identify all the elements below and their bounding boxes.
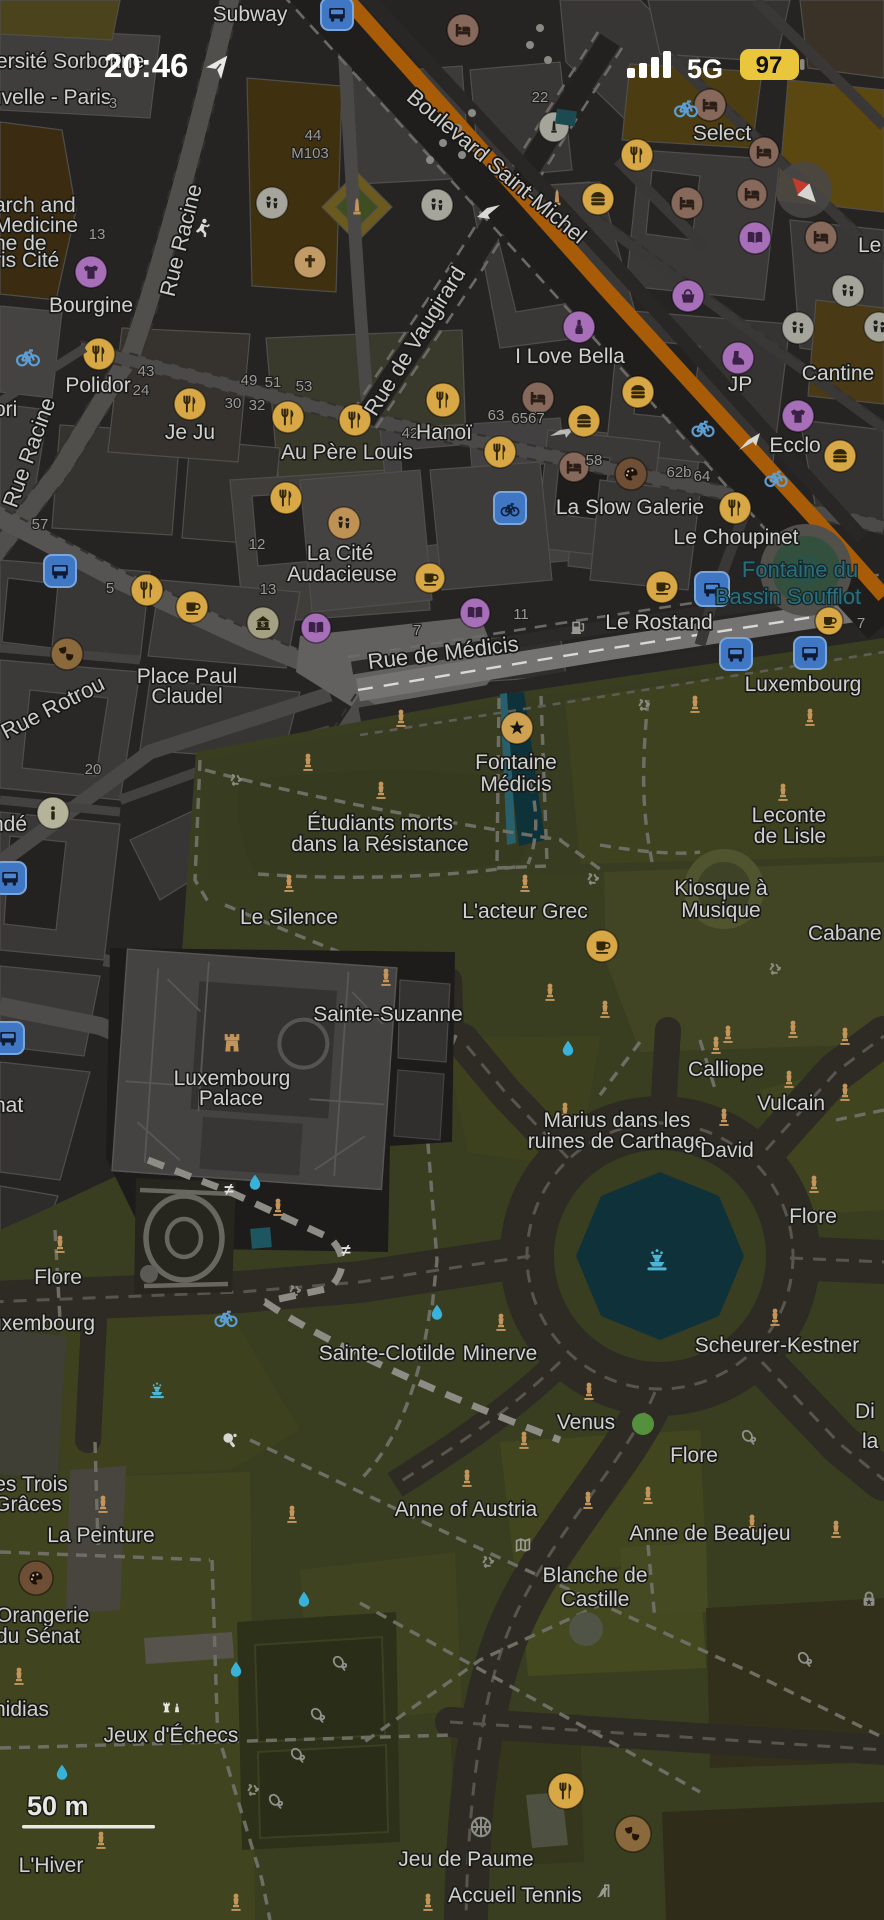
svg-text:Le Silence: Le Silence bbox=[240, 906, 338, 929]
svg-text:Le Choupinet: Le Choupinet bbox=[674, 526, 799, 549]
svg-text:Polidor: Polidor bbox=[65, 374, 130, 397]
svg-text:Subway: Subway bbox=[213, 3, 288, 26]
svg-text:Musique: Musique bbox=[681, 899, 760, 922]
svg-text:du Sénat: du Sénat bbox=[0, 1625, 80, 1648]
svg-text:Jeux d'Échecs: Jeux d'Échecs bbox=[104, 1724, 239, 1747]
svg-text:Au Père Louis: Au Père Louis bbox=[281, 441, 413, 464]
svg-text:Accueil Tennis: Accueil Tennis bbox=[448, 1884, 582, 1907]
svg-text:dans la Résistance: dans la Résistance bbox=[291, 833, 468, 856]
svg-text:63: 63 bbox=[488, 407, 505, 424]
svg-text:Select: Select bbox=[693, 122, 752, 145]
svg-text:7: 7 bbox=[857, 615, 865, 632]
svg-text:13: 13 bbox=[260, 581, 277, 598]
svg-text:5: 5 bbox=[106, 580, 114, 597]
svg-text:de Lisle: de Lisle bbox=[754, 825, 826, 848]
svg-text:Le Rostand: Le Rostand bbox=[605, 611, 712, 634]
svg-text:22: 22 bbox=[532, 89, 549, 106]
svg-text:Luxembourg: Luxembourg bbox=[745, 673, 862, 696]
svg-text:nat: nat bbox=[0, 1094, 23, 1117]
svg-text:Bassin Soufflot: Bassin Soufflot bbox=[715, 584, 861, 609]
svg-text:Palace: Palace bbox=[199, 1087, 263, 1110]
svg-text:13: 13 bbox=[89, 226, 106, 243]
svg-text:Ecclo: Ecclo bbox=[769, 434, 820, 457]
svg-text:11: 11 bbox=[513, 606, 529, 623]
svg-text:Claudel: Claudel bbox=[151, 685, 222, 708]
svg-text:L'acteur Grec: L'acteur Grec bbox=[462, 900, 587, 923]
svg-text:7: 7 bbox=[413, 622, 421, 639]
svg-text:Cantine: Cantine bbox=[802, 362, 874, 385]
svg-text:Marius dans les: Marius dans les bbox=[543, 1109, 690, 1132]
svg-text:Le: Le bbox=[858, 234, 881, 257]
svg-text:ndé: ndé bbox=[0, 813, 27, 836]
svg-text:David: David bbox=[700, 1139, 754, 1162]
svg-text:hidias: hidias bbox=[0, 1698, 49, 1721]
svg-text:Grâces: Grâces bbox=[0, 1493, 62, 1516]
svg-text:Calliope: Calliope bbox=[688, 1058, 764, 1081]
svg-text:Leconte: Leconte bbox=[752, 804, 827, 827]
svg-text:I Love Bella: I Love Bella bbox=[515, 345, 625, 368]
svg-text:L'Hiver: L'Hiver bbox=[19, 1854, 84, 1877]
svg-text:Sainte-Suzanne: Sainte-Suzanne bbox=[313, 1003, 462, 1026]
svg-text:24: 24 bbox=[133, 382, 150, 399]
svg-text:57: 57 bbox=[32, 516, 49, 533]
svg-text:ori: ori bbox=[0, 398, 17, 421]
svg-text:La Slow Galerie: La Slow Galerie bbox=[556, 496, 704, 519]
svg-text:≠: ≠ bbox=[341, 1241, 351, 1260]
svg-text:Médicis: Médicis bbox=[480, 773, 551, 796]
svg-text:30: 30 bbox=[225, 395, 242, 412]
svg-text:Flore: Flore bbox=[789, 1205, 837, 1228]
svg-text:Étudiants morts: Étudiants morts bbox=[307, 812, 453, 835]
svg-text:ruines de Carthage: ruines de Carthage bbox=[528, 1130, 707, 1153]
svg-text:Anne de Beaujeu: Anne de Beaujeu bbox=[629, 1522, 790, 1545]
svg-text:64: 64 bbox=[694, 468, 711, 485]
svg-text:uvelle - Paris: uvelle - Paris bbox=[0, 86, 111, 109]
svg-text:Audacieuse: Audacieuse bbox=[287, 563, 397, 586]
svg-text:43: 43 bbox=[138, 363, 155, 380]
svg-text:La Cité: La Cité bbox=[307, 542, 374, 565]
svg-text:Fontaine: Fontaine bbox=[475, 751, 557, 774]
svg-text:Blanche de: Blanche de bbox=[542, 1564, 647, 1587]
svg-text:Venus: Venus bbox=[557, 1411, 615, 1434]
svg-text:62b: 62b bbox=[666, 464, 691, 481]
svg-text:Hanoï: Hanoï bbox=[416, 421, 472, 444]
svg-text:la: la bbox=[862, 1430, 879, 1453]
svg-text:12: 12 bbox=[249, 536, 266, 553]
svg-text:20:46: 20:46 bbox=[104, 47, 188, 84]
svg-text:Fontaine du: Fontaine du bbox=[742, 557, 858, 582]
svg-text:53: 53 bbox=[296, 378, 313, 395]
svg-text:6567: 6567 bbox=[511, 410, 544, 427]
svg-text:ris Cité: ris Cité bbox=[0, 249, 59, 272]
svg-text:JP: JP bbox=[728, 373, 753, 396]
svg-text:Castille: Castille bbox=[561, 1588, 630, 1611]
svg-text:20: 20 bbox=[85, 761, 102, 778]
svg-text:Scheurer-Kestner: Scheurer-Kestner bbox=[695, 1334, 860, 1357]
svg-text:97: 97 bbox=[756, 52, 783, 79]
svg-text:M103: M103 bbox=[291, 145, 329, 162]
svg-text:Cabane du: Cabane du bbox=[808, 922, 884, 945]
svg-text:Vulcain: Vulcain bbox=[757, 1092, 825, 1115]
svg-text:5G: 5G bbox=[687, 54, 723, 84]
svg-text:Je Ju: Je Ju bbox=[165, 421, 215, 444]
svg-text:Flore: Flore bbox=[34, 1266, 82, 1289]
svg-text:Di: Di bbox=[855, 1400, 875, 1423]
svg-text:44: 44 bbox=[305, 127, 322, 144]
svg-text:58: 58 bbox=[586, 452, 603, 469]
svg-text:Kiosque à: Kiosque à bbox=[674, 877, 768, 900]
svg-text:uxembourg: uxembourg bbox=[0, 1312, 95, 1335]
svg-text:51: 51 bbox=[265, 374, 282, 391]
svg-text:Flore: Flore bbox=[670, 1444, 718, 1467]
svg-text:Orangerie: Orangerie bbox=[0, 1604, 89, 1627]
svg-text:Minerve: Minerve bbox=[463, 1342, 538, 1365]
svg-text:Anne of Austria: Anne of Austria bbox=[395, 1498, 538, 1521]
svg-text:49: 49 bbox=[241, 372, 258, 389]
svg-text:32: 32 bbox=[249, 397, 266, 414]
svg-text:Sainte-Clotilde: Sainte-Clotilde bbox=[319, 1342, 456, 1365]
svg-text:50 m: 50 m bbox=[27, 1791, 89, 1821]
svg-text:≠: ≠ bbox=[224, 1180, 234, 1199]
svg-text:Jeu de Paume: Jeu de Paume bbox=[398, 1848, 533, 1871]
svg-text:Bourgine: Bourgine bbox=[49, 294, 133, 317]
svg-text:3: 3 bbox=[109, 95, 117, 112]
svg-text:La Peinture: La Peinture bbox=[47, 1524, 154, 1547]
